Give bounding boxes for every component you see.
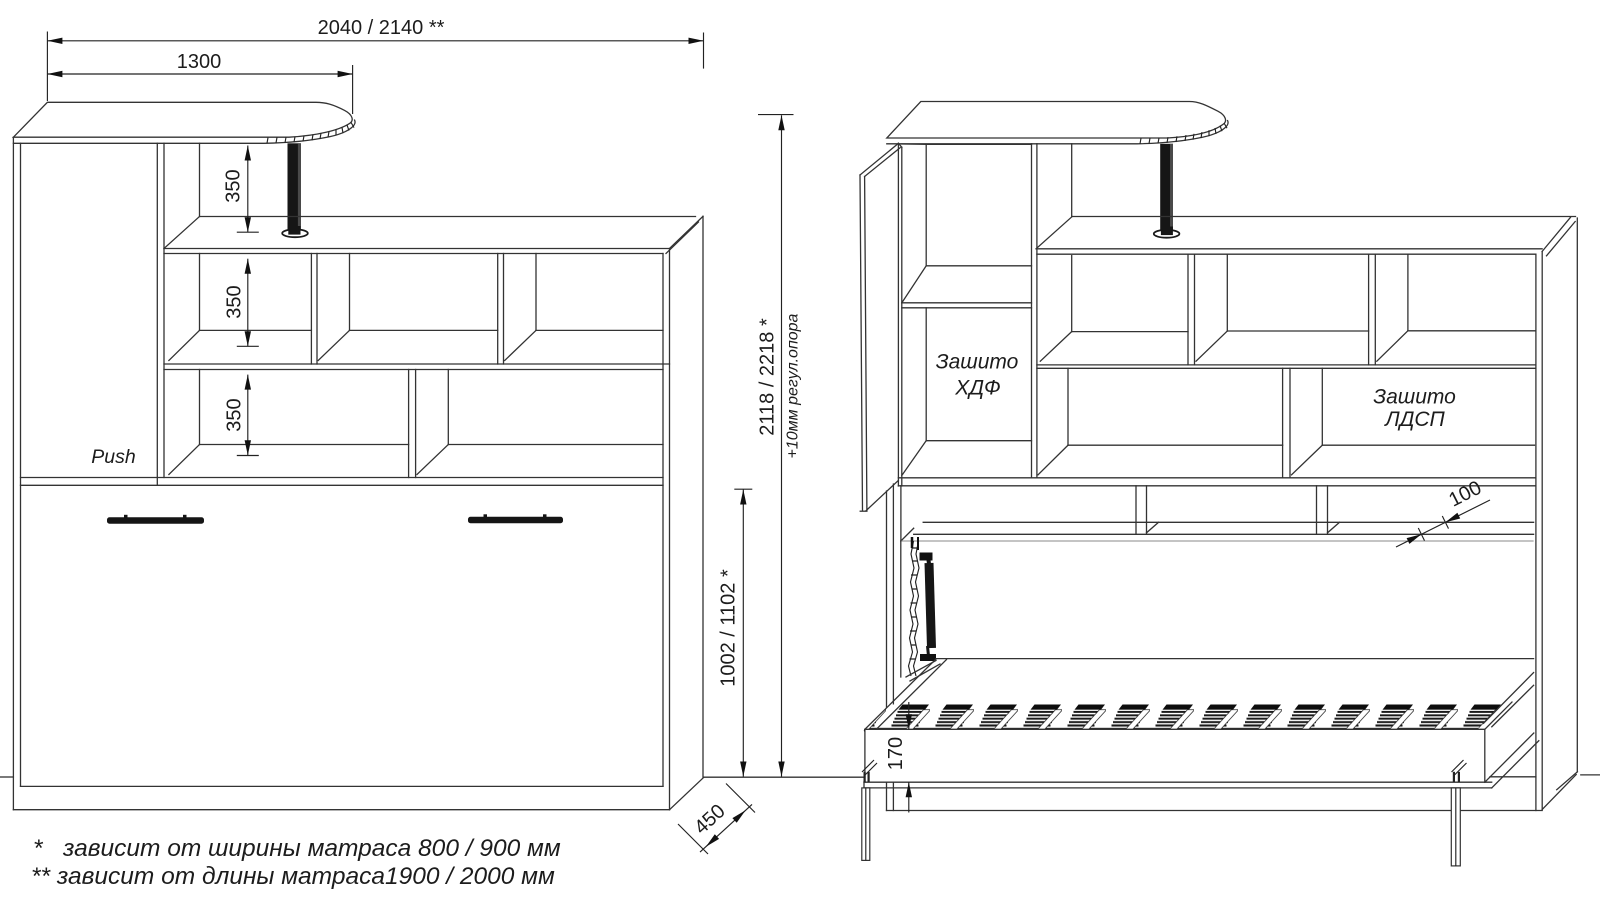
svg-text:350: 350	[223, 169, 245, 202]
svg-text:2040 / 2140 **: 2040 / 2140 **	[318, 17, 445, 39]
svg-text:170: 170	[885, 737, 907, 770]
svg-text:+10мм регул.опора: +10мм регул.опора	[785, 313, 802, 458]
svg-text:350: 350	[223, 398, 245, 431]
svg-text:* зависит от ширины матраса: * зависит от ширины матраса 800 / 900 мм	[33, 835, 561, 862]
svg-text:ЛДСП: ЛДСП	[1383, 408, 1445, 431]
svg-text:350: 350	[223, 285, 245, 318]
svg-text:ХДФ: ХДФ	[954, 377, 1001, 400]
svg-text:Зашито: Зашито	[936, 351, 1019, 374]
svg-text:** зависит от длины матраса190: ** зависит от длины матраса1900 / 2000 м…	[31, 863, 555, 890]
svg-text:2118 / 2218 *: 2118 / 2218 *	[757, 318, 779, 436]
svg-text:Зашито: Зашито	[1373, 386, 1456, 409]
svg-text:Push: Push	[91, 446, 135, 468]
svg-text:1002 / 1102 *: 1002 / 1102 *	[718, 569, 740, 687]
svg-text:1300: 1300	[177, 51, 222, 73]
